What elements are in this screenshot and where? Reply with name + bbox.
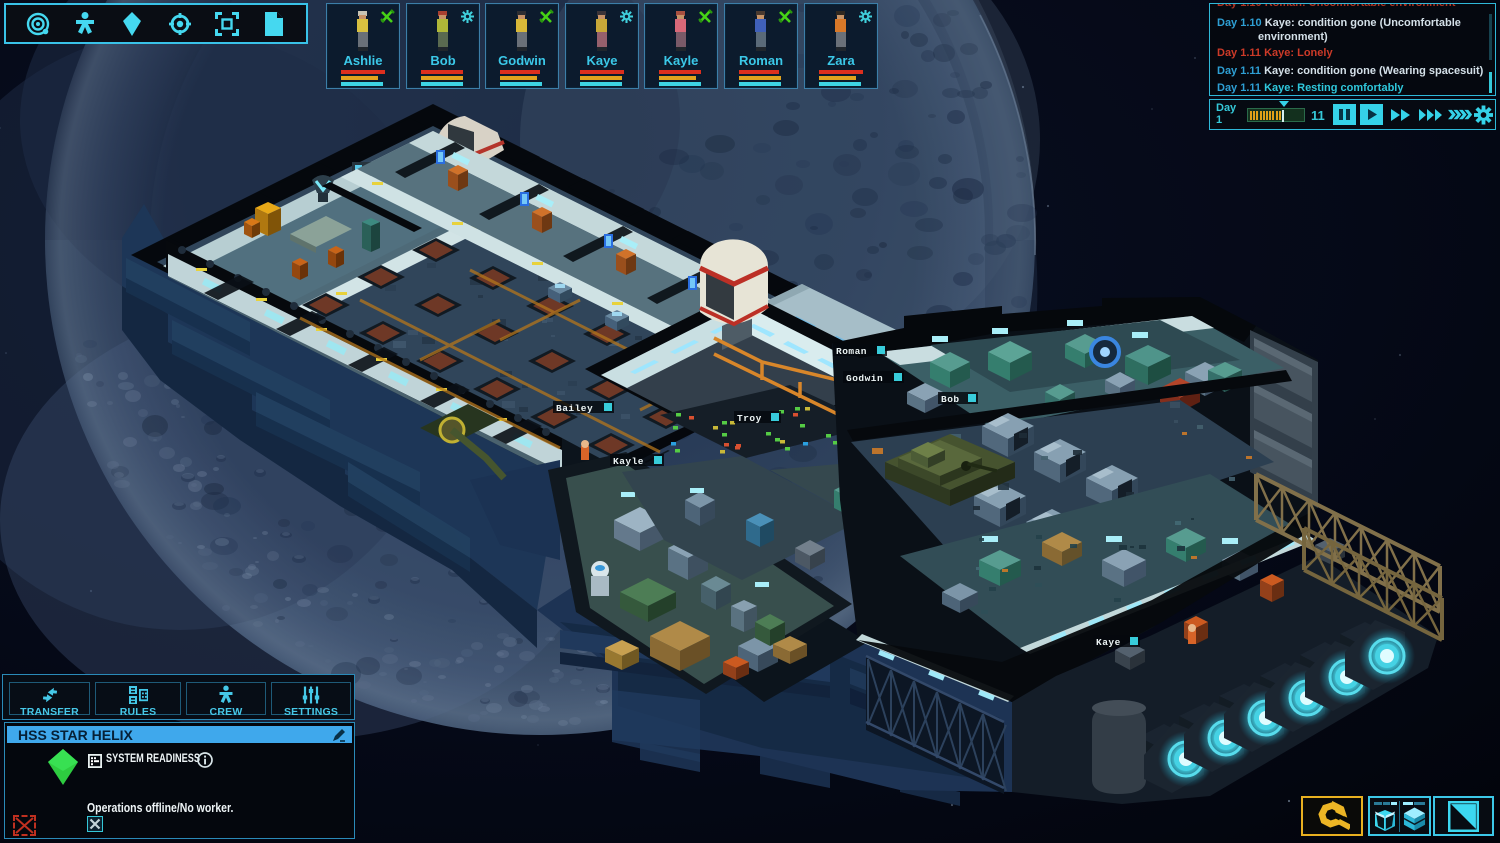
svg-text:Roman: Roman [836, 346, 867, 357]
svg-text:Troy: Troy [737, 413, 762, 424]
svg-text:Bailey: Bailey [556, 403, 593, 414]
svg-text:Bob: Bob [941, 394, 960, 405]
svg-text:Godwin: Godwin [846, 373, 883, 384]
svg-text:Kaye: Kaye [1096, 637, 1121, 648]
svg-text:Kayle: Kayle [613, 456, 644, 467]
